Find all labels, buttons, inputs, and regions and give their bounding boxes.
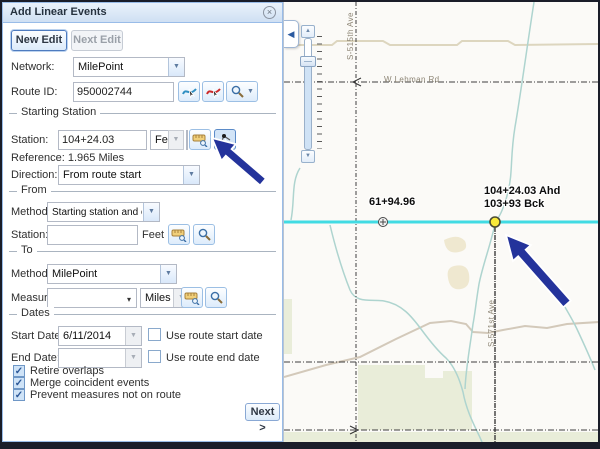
collapse-panel-button[interactable]: ◀ — [284, 20, 299, 48]
station-locate-button[interactable] — [189, 129, 211, 150]
beige-area — [444, 237, 466, 253]
stream — [542, 268, 595, 370]
clear-route-button[interactable] — [202, 81, 224, 102]
chevron-left-icon: ◀ — [288, 29, 295, 39]
ruler-icon — [171, 227, 187, 242]
ruler-icon — [192, 132, 208, 147]
next-button[interactable]: Next > — [245, 403, 280, 421]
retire-overlaps-label: Retire overlaps — [30, 365, 104, 377]
stream — [291, 168, 300, 220]
use-route-end-date-label: Use route end date — [166, 352, 260, 364]
next-edit-button[interactable]: Next Edit — [71, 30, 123, 51]
road-label-s515th: S-515th Ave — [346, 12, 355, 60]
network-select[interactable]: MilePoint ▼ — [73, 57, 185, 77]
zoom-slider-ticks — [317, 36, 322, 149]
to-method-select[interactable]: MilePoint ▼ — [47, 264, 177, 284]
add-linear-events-panel: Add Linear Events × New Edit Next Edit N… — [2, 2, 283, 442]
zoom-in-button[interactable]: ▲ — [301, 25, 315, 38]
select-route-button[interactable] — [178, 81, 200, 102]
station-label-back: 103+93 Bck — [484, 198, 544, 210]
reference-text: Reference: 1.965 Miles — [11, 152, 124, 164]
from-station-unit: Feet — [142, 229, 164, 241]
clear-route-icon — [206, 84, 221, 99]
field-area — [358, 365, 472, 430]
to-method-value: MilePoint — [52, 268, 159, 280]
chevron-down-icon[interactable]: ▾ — [127, 295, 131, 304]
new-edit-button[interactable]: New Edit — [11, 30, 67, 51]
app-window: Add Linear Events × New Edit Next Edit N… — [0, 0, 600, 449]
chevron-down-icon[interactable]: ▼ — [183, 166, 199, 184]
end-date-label: End Date: — [11, 352, 60, 364]
zoom-slider-track[interactable] — [304, 38, 312, 150]
network-value: MilePoint — [78, 61, 167, 73]
route-id-label: Route ID: — [11, 86, 57, 98]
station-label: Station: — [11, 134, 48, 146]
field-strip-left — [284, 299, 292, 354]
zoom-slider-handle[interactable] — [300, 56, 316, 67]
search-icon — [197, 227, 212, 242]
search-icon — [230, 84, 245, 99]
start-date-picker[interactable]: 6/11/2014 ▼ — [58, 326, 142, 346]
measure-search-button[interactable] — [205, 287, 227, 308]
use-route-start-date-label: Use route start date — [166, 330, 263, 342]
starting-station-section: Starting Station — [9, 113, 276, 114]
chevron-down-icon[interactable]: ▼ — [160, 265, 176, 283]
pick-station-on-map-button[interactable] — [214, 129, 236, 150]
chevron-down-icon[interactable]: ▼ — [168, 58, 184, 76]
measure-locate-button[interactable] — [181, 287, 203, 308]
vertex-tool-icon — [218, 132, 233, 147]
from-method-value: Starting station and offset — [52, 207, 142, 218]
chevron-down-icon[interactable]: ▼ — [247, 88, 254, 95]
measure-select[interactable]: ▾ — [47, 288, 137, 308]
to-legend: To — [17, 244, 37, 256]
from-legend: From — [17, 184, 51, 196]
panel-header: Add Linear Events × — [3, 3, 282, 23]
from-station-search-button[interactable] — [193, 224, 215, 245]
starting-station-legend: Starting Station — [17, 106, 100, 118]
search-icon — [209, 290, 224, 305]
select-route-icon — [182, 84, 197, 99]
field-strip-bottom — [284, 432, 598, 442]
from-method-label: Method: — [11, 206, 51, 218]
use-route-end-date-checkbox[interactable] — [148, 350, 161, 363]
dates-legend: Dates — [17, 307, 54, 319]
search-route-button[interactable]: ▼ — [226, 81, 258, 102]
close-icon[interactable]: × — [263, 6, 276, 19]
from-station-locate-button[interactable] — [168, 224, 190, 245]
network-label: Network: — [11, 61, 54, 73]
road-label-lehman: W Lehman Rd — [384, 75, 440, 84]
retire-overlaps-checkbox[interactable]: ✓ — [13, 365, 25, 377]
from-station-label: Station: — [11, 229, 48, 241]
to-method-label: Method: — [11, 268, 51, 280]
start-date-value: 6/11/2014 — [63, 330, 124, 342]
route-id-input[interactable] — [73, 82, 174, 102]
zoom-out-button[interactable]: ▼ — [301, 150, 315, 163]
start-date-label: Start Date: — [11, 330, 64, 342]
road-label-s571st: S-571st Ave — [487, 300, 496, 347]
direction-select[interactable]: From route start ▼ — [58, 165, 200, 185]
beige-area — [448, 265, 470, 289]
direction-value: From route start — [63, 169, 182, 181]
dates-section: Dates — [9, 314, 276, 315]
merge-coincident-events-label: Merge coincident events — [30, 377, 149, 389]
map-graphics — [284, 2, 598, 442]
selected-station-marker[interactable] — [490, 217, 500, 227]
tan-road-diagonal — [284, 321, 598, 377]
from-method-select[interactable]: Starting station and offset ▼ — [47, 202, 160, 222]
panel-title: Add Linear Events — [10, 6, 107, 18]
station-label-left: 61+94.96 — [369, 196, 415, 208]
measure-unit-value: Miles — [145, 292, 172, 304]
prevent-measures-checkbox[interactable]: ✓ — [13, 389, 25, 401]
to-section: To — [9, 251, 276, 252]
from-section: From — [9, 191, 276, 192]
from-station-input[interactable] — [47, 225, 138, 245]
tan-road-top — [284, 41, 598, 45]
merge-coincident-events-checkbox[interactable]: ✓ — [13, 377, 25, 389]
prevent-measures-label: Prevent measures not on route — [30, 389, 181, 401]
chevron-down-icon[interactable]: ▼ — [143, 203, 159, 221]
chevron-down-icon[interactable]: ▼ — [125, 349, 141, 367]
station-reference-marker — [379, 218, 388, 227]
station-label-ahead: 104+24.03 Ahd — [484, 185, 560, 197]
chevron-down-icon[interactable]: ▼ — [125, 327, 141, 345]
station-input[interactable] — [58, 130, 147, 150]
direction-label: Direction: — [11, 169, 57, 181]
map-canvas[interactable]: S-515th Ave W Lehman Rd S-571st Ave 61+9… — [283, 2, 598, 442]
use-route-start-date-checkbox[interactable] — [148, 328, 161, 341]
ruler-icon — [184, 290, 200, 305]
chevron-down-icon[interactable]: ▼ — [168, 130, 184, 150]
